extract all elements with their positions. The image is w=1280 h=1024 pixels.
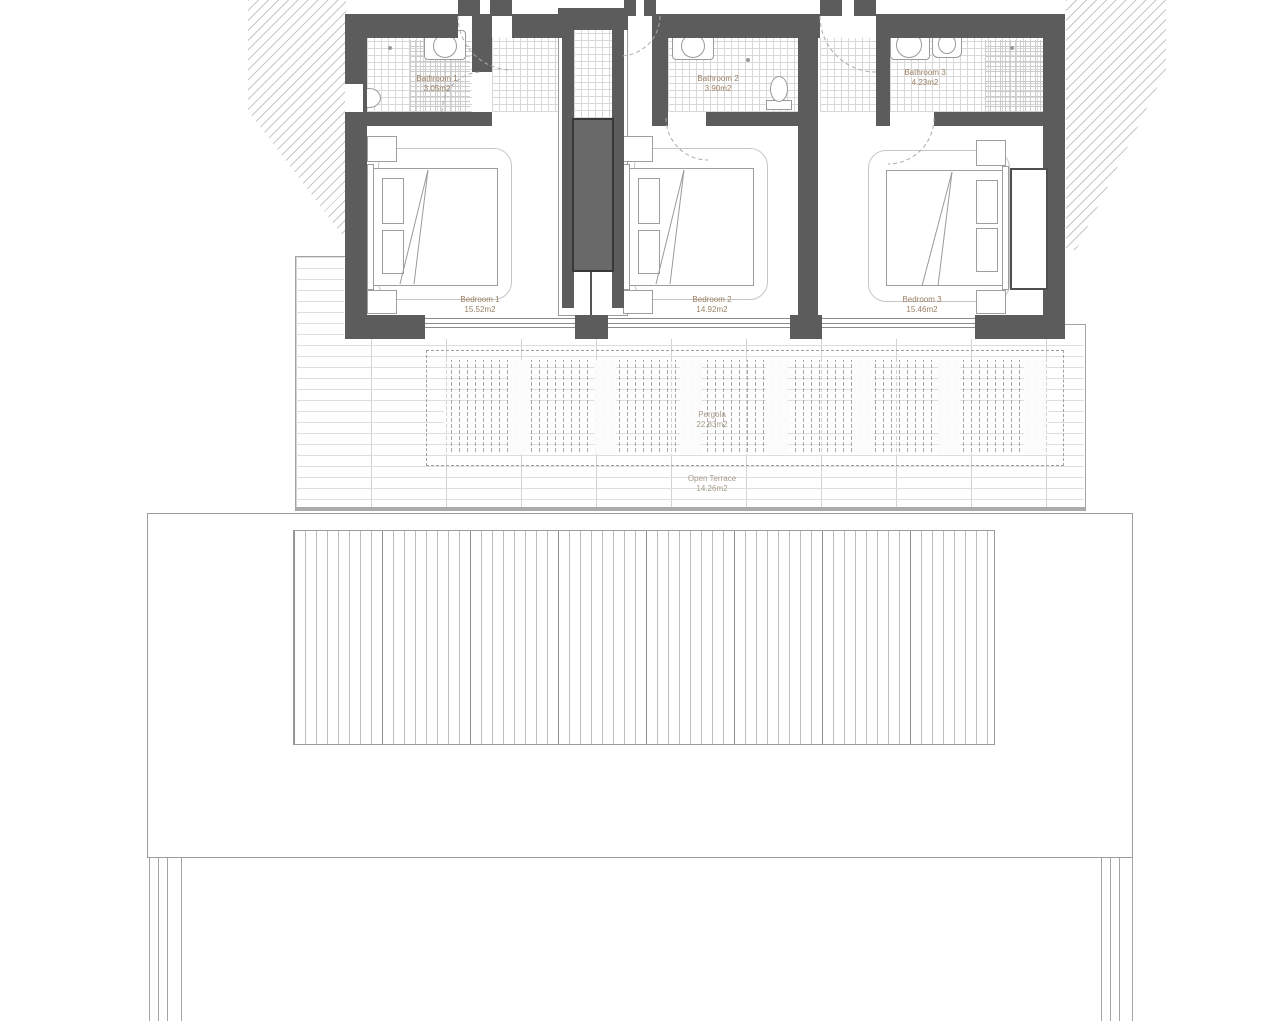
- bedroom-3-headboard: [1002, 166, 1009, 290]
- wall-left: [345, 14, 367, 317]
- room-area: 15.52m2: [430, 305, 530, 315]
- stair-line: [149, 858, 150, 1021]
- pergola-slats: [444, 360, 1048, 454]
- wall-bedroom-divider: [798, 14, 818, 315]
- bedroom-2-nightstand: [623, 290, 653, 314]
- bedroom-2-pillow: [638, 178, 660, 224]
- bedroom-2-headboard: [623, 164, 630, 290]
- wall-top-segment: [512, 14, 566, 38]
- room-name: Bathroom 3: [875, 68, 975, 78]
- bedroom-2-label: Bedroom 2 14.92m2: [662, 295, 762, 316]
- terrace-parapet: [296, 507, 1085, 511]
- shaft-cap-wall: [558, 8, 628, 30]
- lower-deck: [293, 530, 995, 745]
- terrace-edge-left: [295, 256, 296, 511]
- room-name: Pergola: [662, 410, 762, 420]
- shower-drain-icon: [746, 58, 750, 62]
- wall-stub: [490, 0, 512, 16]
- vestibule-1-tiles: [492, 38, 562, 112]
- room-area: 15.46m2: [872, 305, 972, 315]
- bedroom-1-nightstand: [367, 290, 397, 314]
- bedroom-2-pillow: [638, 230, 660, 274]
- bedroom-1-pillow: [382, 230, 404, 274]
- shower-drain-icon: [1010, 46, 1014, 50]
- room-area: 3.90m2: [668, 84, 768, 94]
- stair-line: [181, 858, 182, 1021]
- vestibule-3-tiles: [820, 38, 876, 112]
- bathroom-3-shower: [985, 40, 1043, 112]
- room-name: Bedroom 3: [872, 295, 972, 305]
- shower-drain-icon: [388, 46, 392, 50]
- stair-line: [1101, 858, 1102, 1021]
- stair-line: [1132, 858, 1133, 1021]
- bedroom-1-pillow: [382, 178, 404, 224]
- bedroom-3-pillow: [976, 228, 998, 272]
- wall-stub: [820, 0, 842, 16]
- bedroom-1-label: Bedroom 1 15.52m2: [430, 295, 530, 316]
- bedroom-1-nightstand: [367, 136, 397, 162]
- terrace-edge-top-right: [1065, 324, 1086, 325]
- shaft-grid: [574, 30, 612, 118]
- wall-bathroom-2-bottom: [706, 112, 798, 126]
- wall-bottom-segment: [790, 315, 822, 339]
- roof-hatch-left: [248, 0, 346, 240]
- wall-bottom-segment: [345, 315, 425, 339]
- wall-top-segment: [876, 14, 1065, 38]
- room-name: Bedroom 1: [430, 295, 530, 305]
- room-area: 3.05m2: [387, 84, 487, 94]
- wall-bathroom-3-bottom: [934, 112, 1043, 126]
- wall-bottom-segment: [975, 315, 1065, 339]
- wall-bathroom-1-side: [472, 14, 492, 72]
- room-area: 4.23m2: [875, 78, 975, 88]
- bathroom-3-label: Bathroom 3 4.23m2: [875, 68, 975, 89]
- terrace-edge-right: [1085, 324, 1086, 511]
- wall-top-segment: [652, 14, 820, 38]
- bedroom-2-nightstand: [623, 136, 653, 162]
- room-name: Bedroom 2: [662, 295, 762, 305]
- room-name: Bathroom 1: [387, 74, 487, 84]
- window: [608, 318, 790, 328]
- stair-line: [1110, 858, 1111, 1021]
- room-area: 22.83m2: [662, 420, 762, 430]
- room-area: 14.92m2: [662, 305, 762, 315]
- window: [822, 318, 975, 328]
- room-name: Bathroom 2: [668, 74, 768, 84]
- stair-line: [167, 858, 168, 1021]
- stair-line: [158, 858, 159, 1021]
- bedroom-1-headboard: [367, 164, 374, 290]
- floor-plan: Bathroom 1 3.05m2 Bathroom 2 3.90m2 Bath…: [0, 0, 1280, 1024]
- room-name: Open Terrace: [662, 474, 762, 484]
- stair-line: [1119, 858, 1120, 1021]
- roof-hatch-right: [1066, 0, 1166, 250]
- wall-stub: [624, 0, 636, 16]
- wall-stub: [854, 0, 876, 16]
- wall-left-niche: [345, 84, 363, 112]
- shaft-duct: [572, 118, 614, 272]
- bedroom-3-pillow: [976, 180, 998, 224]
- room-area: 14.26m2: [662, 484, 762, 494]
- window: [425, 318, 575, 328]
- bedroom-3-nightstand: [976, 290, 1006, 314]
- pergola-label: Pergola 22.83m2: [662, 410, 762, 431]
- terrace-edge-top-left: [295, 256, 345, 257]
- wall-bottom-segment: [575, 315, 608, 339]
- wall-bathroom-2-side: [652, 14, 668, 126]
- bedroom-3-wardrobe: [1010, 168, 1048, 290]
- open-terrace-label: Open Terrace 14.26m2: [662, 474, 762, 495]
- bedroom-3-nightstand: [976, 140, 1006, 166]
- shaft-stem-wall: [590, 272, 592, 316]
- toilet-bowl-icon: [770, 76, 788, 102]
- bathroom-2-label: Bathroom 2 3.90m2: [668, 74, 768, 95]
- wall-bathroom-1-bottom: [345, 112, 492, 126]
- bathroom-1-label: Bathroom 1 3.05m2: [387, 74, 487, 95]
- bedroom-3-label: Bedroom 3 15.46m2: [872, 295, 972, 316]
